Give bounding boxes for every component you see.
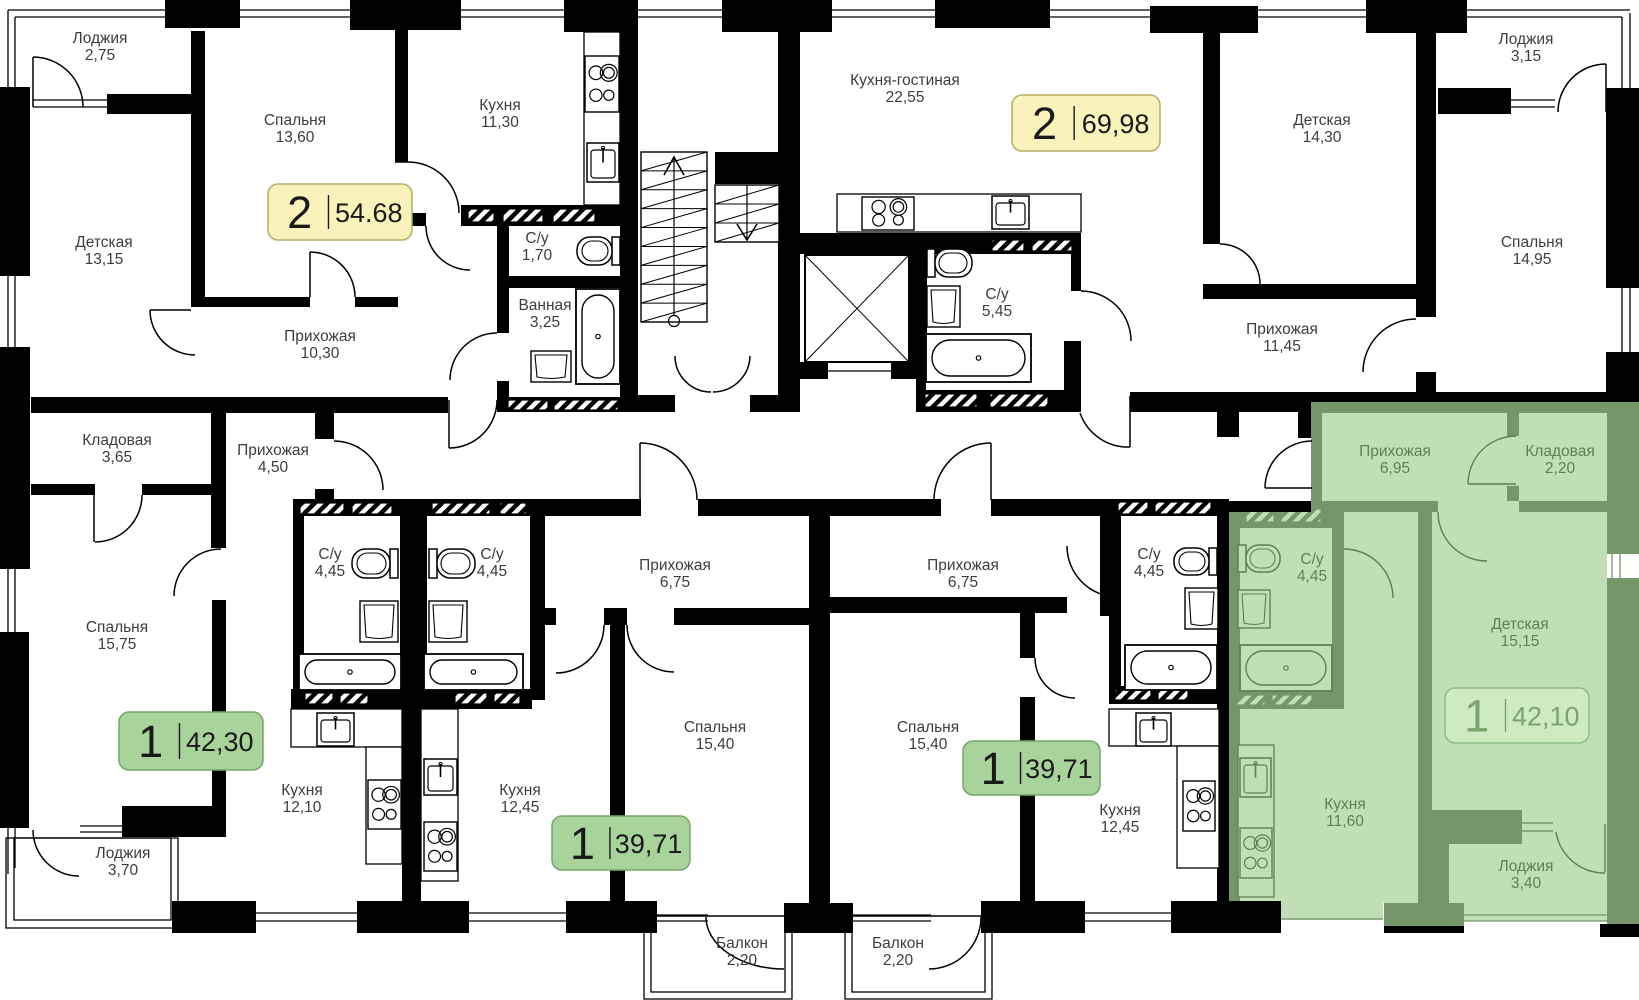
svg-text:Прихожая: Прихожая — [1359, 443, 1431, 460]
svg-text:15,40: 15,40 — [909, 736, 948, 753]
svg-text:2,20: 2,20 — [727, 952, 758, 969]
svg-text:3,70: 3,70 — [108, 862, 139, 879]
svg-text:14,95: 14,95 — [1513, 251, 1552, 268]
svg-text:Спальня: Спальня — [684, 719, 746, 736]
svg-text:11,60: 11,60 — [1326, 813, 1364, 830]
svg-text:Спальня: Спальня — [1501, 234, 1563, 251]
svg-text:Кладовая: Кладовая — [82, 432, 151, 449]
svg-text:12,45: 12,45 — [501, 799, 540, 816]
svg-text:13,60: 13,60 — [276, 129, 315, 146]
svg-text:Балкон: Балкон — [872, 935, 924, 952]
svg-text:С/у: С/у — [1300, 551, 1324, 568]
svg-text:Кухня: Кухня — [1099, 802, 1140, 819]
svg-text:Кухня: Кухня — [281, 782, 322, 799]
svg-text:2,75: 2,75 — [85, 47, 115, 64]
svg-text:С/у: С/у — [985, 286, 1009, 303]
svg-text:6,95: 6,95 — [1380, 460, 1410, 477]
svg-text:3,40: 3,40 — [1511, 875, 1542, 892]
svg-text:15,75: 15,75 — [98, 636, 137, 653]
svg-text:С/у: С/у — [480, 546, 504, 563]
svg-text:4,45: 4,45 — [315, 563, 345, 580]
svg-text:Лоджия: Лоджия — [96, 845, 151, 862]
svg-text:Прихожая: Прихожая — [237, 442, 309, 459]
svg-text:6,75: 6,75 — [660, 574, 690, 591]
svg-text:1,70: 1,70 — [522, 247, 553, 264]
svg-text:Детская: Детская — [1491, 616, 1548, 633]
svg-text:15,15: 15,15 — [1501, 633, 1540, 650]
svg-text:1: 1 — [138, 716, 163, 767]
svg-text:42,30: 42,30 — [186, 727, 254, 757]
svg-text:Балкон: Балкон — [716, 935, 768, 952]
svg-text:39,71: 39,71 — [1025, 754, 1093, 784]
svg-text:Лоджия: Лоджия — [1499, 858, 1554, 875]
svg-text:14,30: 14,30 — [1303, 129, 1342, 146]
svg-text:11,45: 11,45 — [1263, 338, 1301, 355]
svg-text:12,10: 12,10 — [283, 799, 322, 816]
svg-text:22,55: 22,55 — [886, 89, 925, 106]
svg-text:39,71: 39,71 — [615, 829, 683, 859]
svg-text:Детская: Детская — [75, 234, 132, 251]
svg-text:3,65: 3,65 — [102, 449, 132, 466]
svg-text:Прихожая: Прихожая — [639, 557, 711, 574]
svg-text:Спальня: Спальня — [897, 719, 959, 736]
svg-text:4,50: 4,50 — [258, 459, 289, 476]
svg-text:2: 2 — [1032, 98, 1057, 149]
svg-text:1: 1 — [570, 818, 595, 869]
svg-text:15,40: 15,40 — [696, 736, 735, 753]
svg-text:С/у: С/у — [318, 546, 342, 563]
svg-text:Спальня: Спальня — [86, 619, 148, 636]
svg-text:13,15: 13,15 — [85, 251, 124, 268]
svg-text:2,20: 2,20 — [1545, 460, 1576, 477]
svg-text:Кухня-гостиная: Кухня-гостиная — [850, 72, 960, 89]
svg-text:6,75: 6,75 — [948, 574, 978, 591]
svg-text:3,25: 3,25 — [530, 314, 560, 331]
svg-text:Прихожая: Прихожая — [927, 557, 999, 574]
svg-text:3,15: 3,15 — [1511, 48, 1541, 65]
svg-text:54.68: 54.68 — [335, 198, 403, 228]
svg-text:5,45: 5,45 — [982, 303, 1012, 320]
svg-text:10,30: 10,30 — [301, 345, 340, 362]
svg-text:4,45: 4,45 — [1134, 563, 1164, 580]
svg-text:12,45: 12,45 — [1101, 819, 1140, 836]
svg-text:Детская: Детская — [1293, 112, 1350, 129]
svg-text:Прихожая: Прихожая — [1246, 321, 1318, 338]
svg-text:Прихожая: Прихожая — [284, 328, 356, 345]
svg-text:2,20: 2,20 — [883, 952, 914, 969]
svg-text:4,45: 4,45 — [477, 563, 507, 580]
svg-text:Ванная: Ванная — [518, 297, 571, 314]
svg-text:4,45: 4,45 — [1297, 568, 1327, 585]
svg-text:Кухня: Кухня — [499, 782, 540, 799]
svg-text:С/у: С/у — [525, 230, 549, 247]
svg-text:Лоджия: Лоджия — [73, 30, 128, 47]
svg-text:Кухня: Кухня — [1324, 796, 1365, 813]
svg-text:1: 1 — [1464, 691, 1489, 742]
svg-text:Кладовая: Кладовая — [1525, 443, 1594, 460]
svg-text:Лоджия: Лоджия — [1499, 31, 1554, 48]
svg-text:Спальня: Спальня — [264, 112, 326, 129]
svg-text:2: 2 — [287, 187, 312, 238]
svg-text:Кухня: Кухня — [479, 97, 520, 114]
svg-text:11,30: 11,30 — [481, 114, 519, 131]
svg-text:42,10: 42,10 — [1512, 702, 1580, 732]
svg-text:69,98: 69,98 — [1082, 109, 1150, 139]
svg-text:С/у: С/у — [1137, 546, 1161, 563]
svg-text:1: 1 — [981, 743, 1006, 794]
